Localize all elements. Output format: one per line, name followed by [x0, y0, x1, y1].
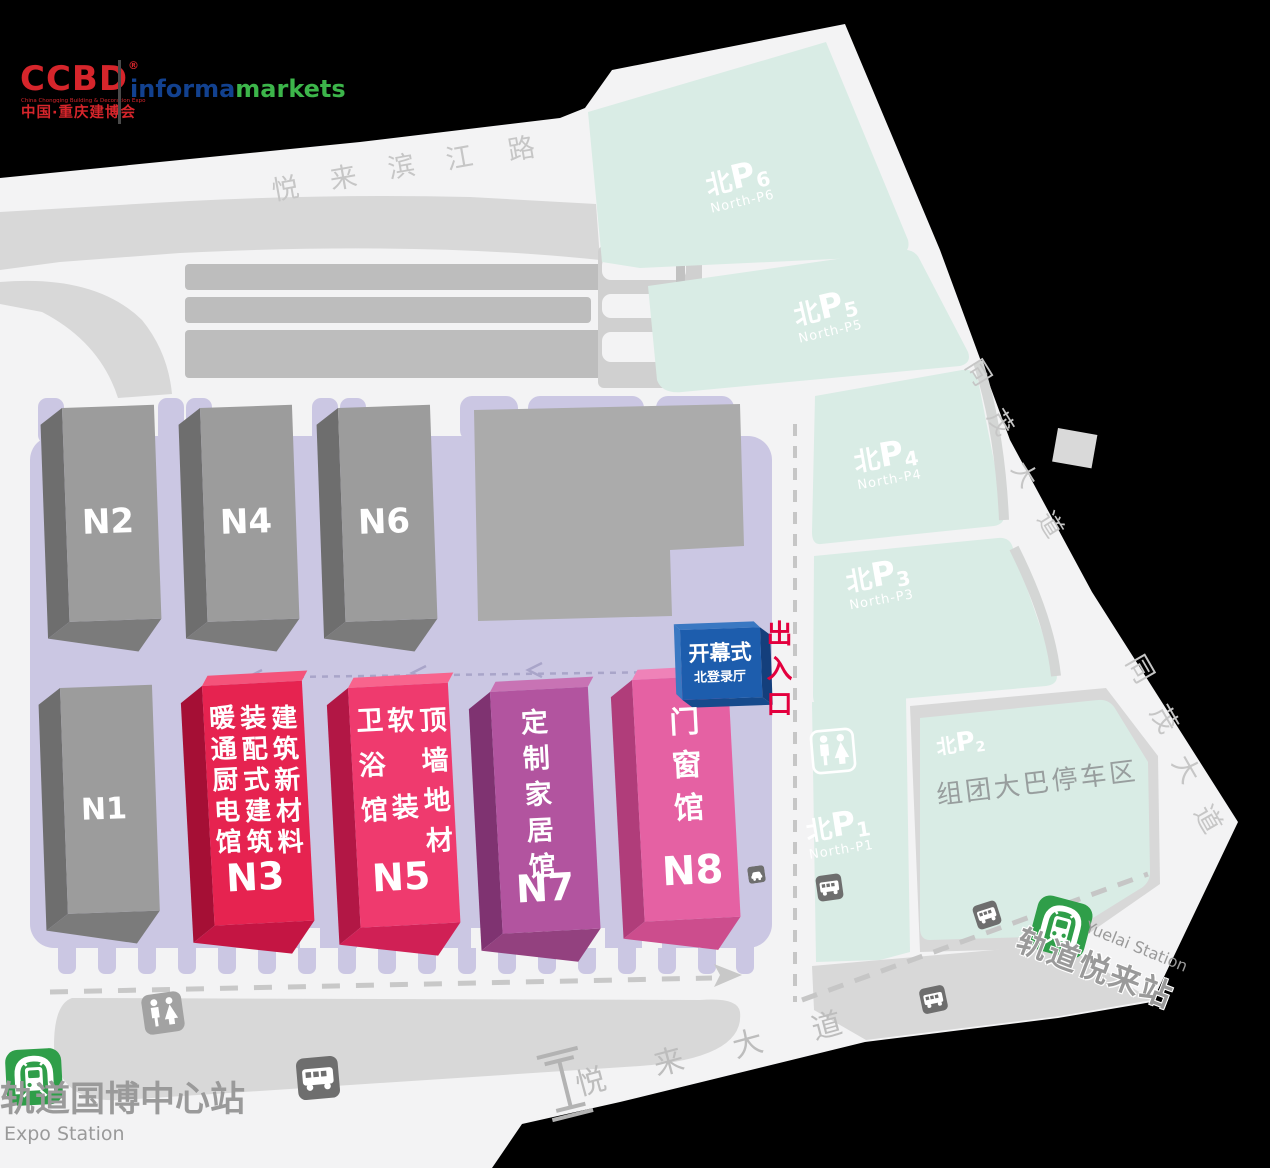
parking-p: P	[954, 726, 977, 758]
parking-label-p1: 北P1 North-P1	[803, 803, 875, 862]
parking-p: P	[828, 803, 858, 845]
entrance-exit-label: 出入口	[764, 620, 790, 725]
road-char: 滨	[386, 152, 417, 183]
expo-station-label-en: Expo Station	[4, 1124, 125, 1146]
small-parcel	[1052, 428, 1097, 468]
hall-n5-label: N5	[371, 854, 429, 901]
bus-stop-icon	[294, 1054, 342, 1102]
hall-n5-category: 卫浴馆	[352, 705, 386, 841]
venue-map: CCBD® China Chongqing Building & Decorat…	[0, 0, 1270, 1168]
hall-n1-label: N1	[71, 791, 136, 828]
parking-label-p2: 北P2	[934, 727, 986, 760]
hall-n3-category: 建筑新材料	[268, 703, 302, 859]
parking-label-p4: 北P4 North-P4	[850, 433, 923, 493]
hall-n3-label: N3	[225, 854, 283, 901]
bus-stop-icon	[814, 872, 844, 902]
car-icon	[747, 865, 766, 884]
hall-n5-category: 顶墙地材	[416, 705, 451, 866]
markets-wordmark: markets	[235, 75, 345, 103]
hall-n7-label: N7	[515, 865, 573, 912]
ccbd-logo: CCBD®	[20, 60, 140, 99]
road-char: 江	[444, 143, 475, 174]
parking-num: 1	[855, 816, 873, 842]
informa-wordmark: informa	[130, 75, 235, 103]
hall-n6-label: N6	[351, 501, 416, 543]
parking-num: 2	[975, 739, 987, 756]
road-char: 来	[328, 163, 359, 194]
registration-subtitle: 北登录厅	[682, 670, 758, 688]
ccbd-logo-subtext: China Chongqing Building & Decoration Ex…	[21, 98, 145, 104]
logo-divider	[118, 60, 121, 124]
ccbd-wordmark: CCBD	[20, 59, 128, 99]
hall-n4-label: N4	[213, 501, 278, 543]
hall-n2-label: N2	[75, 501, 140, 543]
basemap-svg	[0, 0, 1270, 1168]
hall-n3-category: 暖通厨电馆	[206, 703, 240, 859]
road-char: 悦	[270, 174, 301, 205]
registration-title: 开幕式	[682, 640, 759, 667]
expo-station-label: 轨道国博中心站	[0, 1080, 245, 1120]
restroom-icon	[808, 726, 858, 776]
informa-markets-logo: informamarkets	[130, 76, 346, 104]
parking-label-p3: 北P3 North-P3	[842, 553, 915, 613]
hall-n3-category: 装配式建筑	[237, 703, 271, 859]
hall-n8-name: 门窗馆	[665, 705, 702, 835]
registered-mark: ®	[128, 59, 140, 72]
platform-bars	[185, 264, 605, 378]
road-char: 路	[506, 134, 537, 165]
hall-n8-label: N8	[661, 847, 719, 896]
restroom-icon	[139, 989, 186, 1036]
bus-stop-icon	[917, 983, 949, 1015]
